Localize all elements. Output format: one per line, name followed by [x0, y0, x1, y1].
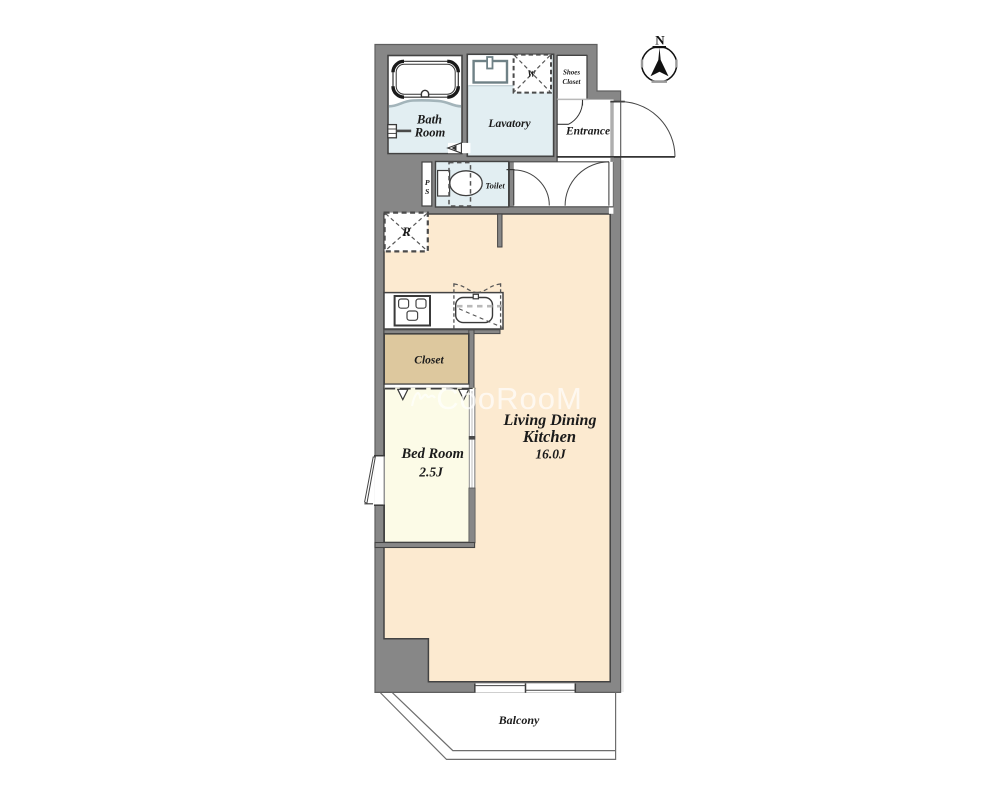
svg-text:R: R: [401, 225, 410, 239]
svg-text:Balcony: Balcony: [498, 713, 540, 727]
svg-text:Closet: Closet: [414, 354, 444, 366]
svg-text:Bath: Bath: [416, 113, 442, 127]
svg-text:S: S: [425, 187, 430, 196]
svg-text:2.5J: 2.5J: [418, 465, 444, 480]
svg-text:Closet: Closet: [563, 78, 582, 86]
svg-text:N: N: [655, 33, 665, 48]
svg-text:W: W: [527, 70, 536, 80]
svg-text:Shoes: Shoes: [563, 69, 580, 77]
svg-text:Room: Room: [414, 126, 446, 140]
svg-text:Lavatory: Lavatory: [487, 118, 531, 130]
svg-text:CooRooM: CooRooM: [436, 381, 583, 416]
svg-text:Toilet: Toilet: [485, 181, 505, 191]
svg-text:16.0J: 16.0J: [535, 447, 567, 462]
svg-text:Entrance: Entrance: [565, 125, 610, 137]
svg-text:Bed Room: Bed Room: [400, 446, 463, 462]
svg-text:P: P: [425, 178, 430, 187]
svg-text:Kitchen: Kitchen: [522, 427, 576, 446]
